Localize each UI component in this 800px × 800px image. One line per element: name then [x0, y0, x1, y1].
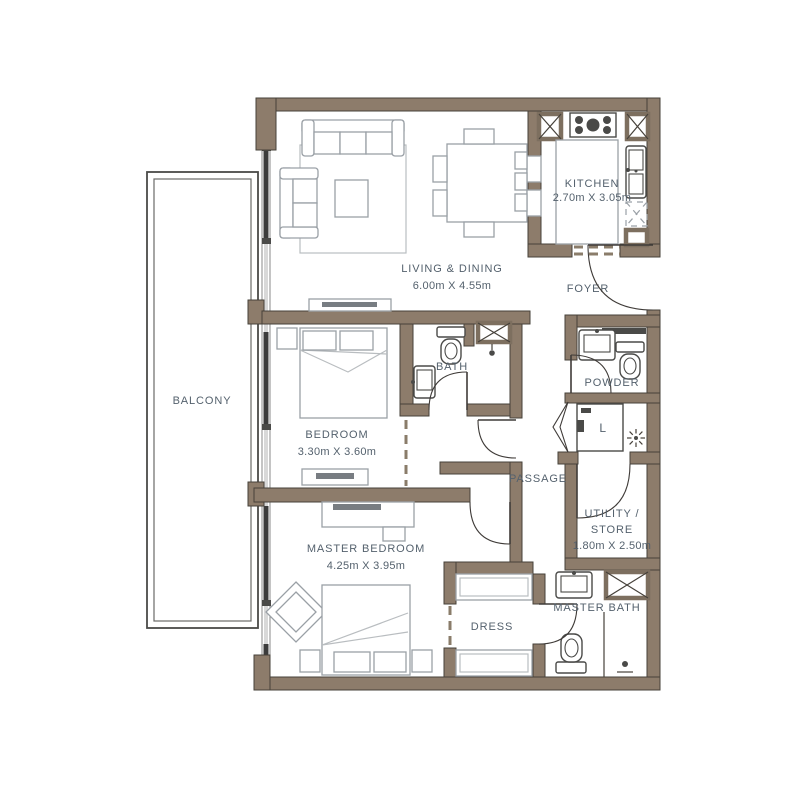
shower-mixer-icon — [617, 661, 633, 672]
sliding-door-glass-icon — [264, 506, 269, 600]
wall-powder-north — [565, 315, 660, 327]
utility-label-2: STORE — [591, 524, 633, 536]
wall-post-bottomleft — [254, 655, 270, 690]
wall-dress-north — [450, 562, 533, 574]
wall-laundry-south-right — [630, 452, 660, 464]
toilet-icon — [616, 342, 644, 379]
room-bath: BATH — [411, 323, 510, 410]
wall-master-north — [254, 488, 470, 502]
wall-nook-south — [440, 462, 510, 474]
wall-dress-west-upper — [444, 562, 456, 604]
wall-powder-south — [565, 393, 660, 403]
master-bedroom-label: MASTER BEDROOM — [307, 543, 425, 555]
room-passage: PASSAGE — [478, 420, 567, 485]
shower-head-icon — [489, 344, 495, 356]
room-utility: UTILITY / STORE 1.80m X 2.50m — [573, 464, 652, 552]
wall-laundry-south-left — [558, 452, 578, 464]
wall-bath-south-left — [400, 404, 429, 416]
utility-dims: 1.80m X 2.50m — [573, 540, 652, 552]
powder-label: POWDER — [585, 377, 640, 389]
wall-dress-west-lower — [444, 648, 456, 677]
armchair-icon — [266, 582, 326, 642]
wardrobe-icon — [456, 650, 532, 676]
mullion — [262, 600, 271, 606]
shaft-x-icon — [606, 572, 648, 598]
room-bedroom: BEDROOM 3.30m X 3.60m — [277, 328, 406, 486]
tv-unit-icon — [302, 469, 368, 485]
wall-bath-west — [400, 324, 413, 416]
mullion — [262, 424, 271, 430]
nightstand-icon — [412, 650, 432, 672]
bed-icon — [322, 585, 410, 675]
sofa-icon — [302, 120, 404, 156]
utility-label-1: UTILITY / — [585, 508, 640, 520]
wall-powder-west — [565, 315, 577, 360]
bedroom-dims: 3.30m X 3.60m — [298, 446, 377, 458]
bedroom-label: BEDROOM — [305, 429, 368, 441]
room-living-dining: LIVING & DINING 6.00m X 4.55m — [280, 120, 541, 311]
wall-right-lower — [647, 310, 660, 690]
kitchen-label: KITCHEN — [565, 178, 620, 190]
wall-post-topleft — [256, 98, 276, 150]
bath-label: BATH — [436, 361, 468, 373]
nightstand-icon — [300, 650, 320, 672]
mullion — [262, 238, 271, 244]
laundry-closet: L — [553, 402, 645, 452]
wall-masterbath-west-lower — [533, 644, 545, 677]
sliding-door-glass-icon — [264, 150, 269, 238]
light-point-icon — [627, 429, 645, 447]
appliance-space-icon — [626, 202, 647, 226]
masterbath-sink-icon — [556, 571, 592, 598]
wall-kitchen-south-left — [528, 244, 572, 257]
wall-top — [258, 98, 660, 111]
wall-masterbath-north — [565, 558, 660, 570]
nightstand-icon — [277, 328, 297, 349]
loveseat-icon — [280, 168, 318, 238]
bar-stools-icon — [515, 152, 527, 211]
room-powder: POWDER — [571, 328, 646, 393]
kitchen-cabinet-icon — [626, 230, 647, 245]
laundry-label: L — [599, 421, 606, 435]
dress-label: DRESS — [471, 621, 513, 633]
passage-label: PASSAGE — [509, 473, 567, 485]
wardrobe-icon — [456, 574, 532, 600]
powder-sink-icon — [579, 329, 615, 360]
living-dining-label: LIVING & DINING — [401, 263, 503, 275]
bifold-door-icon — [553, 402, 568, 452]
room-dress: DRESS — [450, 574, 532, 676]
shaft-x-icon — [478, 323, 510, 342]
glass-facade — [262, 98, 271, 677]
master-door — [470, 502, 510, 544]
foyer-label: FOYER — [567, 283, 609, 295]
stove-icon — [570, 113, 616, 137]
kitchen-sink-icon — [626, 146, 646, 198]
room-kitchen: KITCHEN 2.70m X 3.05m — [539, 113, 648, 245]
kitchen-dims: 2.70m X 3.05m — [553, 192, 632, 204]
coffee-table-icon — [335, 180, 368, 217]
bed-icon — [300, 328, 387, 418]
balcony: BALCONY — [147, 172, 258, 628]
passage-door — [478, 420, 516, 458]
shaft-x-icon — [539, 114, 561, 139]
room-master-bath: MASTER BATH — [539, 571, 648, 677]
living-dining-dims: 6.00m X 4.55m — [413, 280, 492, 292]
toilet-icon — [437, 327, 465, 364]
sideboard-icon — [309, 299, 391, 311]
wall-masterbath-west-upper — [533, 574, 545, 604]
wall-bottom — [258, 677, 660, 690]
master-bedroom-dims: 4.25m X 3.95m — [327, 560, 406, 572]
floor-plan: BALCONY — [0, 0, 800, 800]
master-bath-label: MASTER BATH — [553, 602, 640, 614]
desk-icon — [322, 502, 414, 541]
shaft-x-icon — [627, 114, 648, 139]
sliding-door-glass-icon — [264, 332, 269, 424]
balcony-label: BALCONY — [173, 395, 232, 407]
